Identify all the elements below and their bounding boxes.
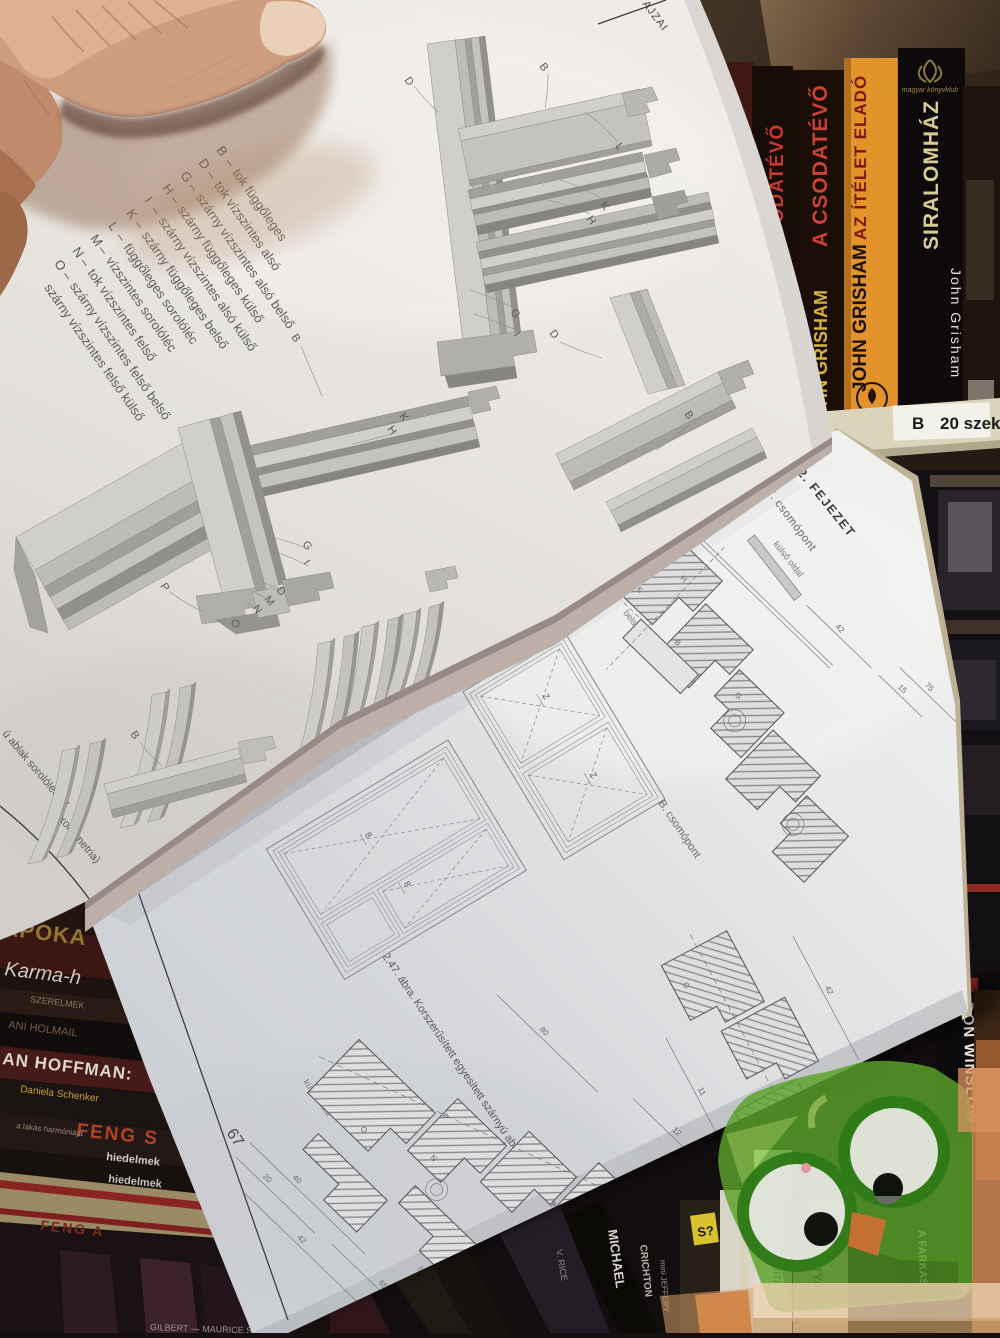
svg-text:A CSODATÉVŐ: A CSODATÉVŐ [809,84,832,247]
svg-text:magyar könyvklub: magyar könyvklub [902,87,959,94]
svg-text:AZ ÍTÉLET ELADÓ: AZ ÍTÉLET ELADÓ [851,75,870,240]
svg-text:S?: S? [696,1223,715,1240]
svg-text:B: B [912,414,924,433]
svg-text:SIRALOMHÁZ: SIRALOMHÁZ [920,100,943,250]
svg-text:20 szek: 20 szek [940,414,1000,433]
svg-text:John Grisham: John Grisham [948,268,964,379]
svg-text:JOHN GRISHAM: JOHN GRISHAM [850,244,871,392]
